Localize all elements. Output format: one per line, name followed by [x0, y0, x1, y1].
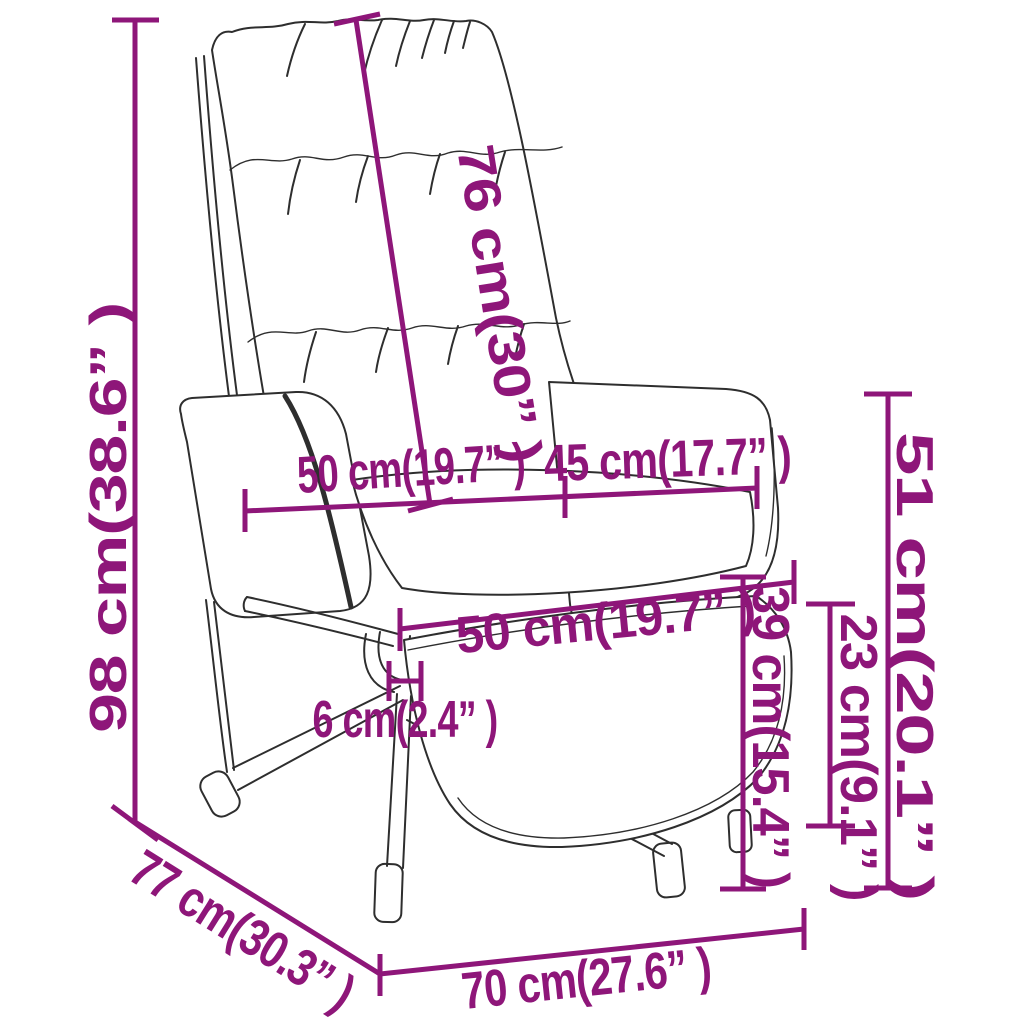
dimension-label-total-depth: 77 cm(30.3” )	[120, 839, 364, 1022]
dimension-clearance-height: 23 cm(9.1” )	[806, 604, 887, 901]
dimension-label-footstool-height: 39 cm(15.4” )	[741, 586, 799, 888]
dimension-base-width: 70 cm(27.6” )	[380, 908, 804, 1021]
dimension-total-depth: 77 cm(30.3” )	[120, 822, 380, 1022]
dimension-label-seat-height: 51 cm(20.1” )	[885, 432, 943, 900]
dimension-label-total-height: 98 cm(38.6” )	[80, 303, 138, 733]
dimension-diagram-canvas: 98 cm(38.6” ) 76 cm(30” ) 50 cm(19.7” ) …	[0, 0, 1024, 1024]
base-foot-right	[652, 842, 685, 899]
dimension-label-base-width: 70 cm(27.6” )	[459, 937, 714, 1021]
dimension-total-height: 98 cm(38.6” )	[80, 20, 159, 840]
base-foot-left	[196, 768, 243, 821]
product-dimension-diagram: 98 cm(38.6” ) 76 cm(30” ) 50 cm(19.7” ) …	[0, 0, 1024, 1024]
dimension-label-footstool-thickness: 6 cm(2.4” )	[313, 691, 498, 749]
dimension-label-armrest-depth: 45 cm(17.7” )	[543, 427, 792, 494]
base-foot-front	[374, 864, 403, 923]
dimension-label-clearance-height: 23 cm(9.1” )	[829, 614, 887, 901]
